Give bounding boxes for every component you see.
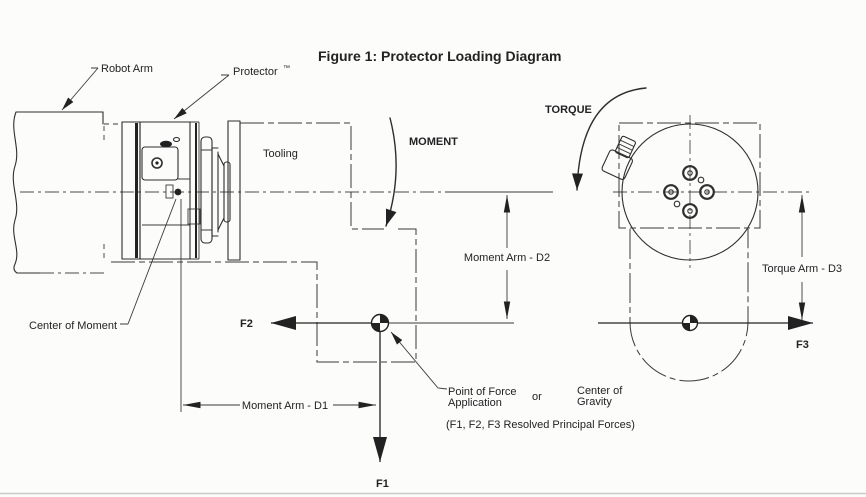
figure-title: Figure 1: Protector Loading Diagram — [318, 48, 561, 64]
center-of-moment-label: Center of Moment — [29, 320, 117, 332]
torque-arm-d3-label: Torque Arm - D3 — [762, 263, 842, 275]
resolved-forces-note: (F1, F2, F3 Resolved Principal Forces) — [446, 419, 635, 431]
protector-face-view — [601, 123, 760, 381]
tooling-phantom-obround — [630, 229, 748, 381]
leader-lines — [62, 68, 447, 389]
robot-arm-drawing — [13, 112, 122, 273]
or-label: or — [532, 391, 542, 403]
moment-arm-d2-label: Moment Arm - D2 — [464, 252, 550, 264]
sensor-cap — [160, 141, 172, 147]
protector-bracket — [201, 137, 212, 243]
robot-arm-label: Robot Arm — [101, 63, 153, 75]
f1-label: F1 — [376, 478, 389, 490]
protector-loading-diagram-page: Figure 1: Protector Loading Diagram Robo… — [0, 0, 866, 497]
cg-symbol-left — [372, 315, 389, 332]
center-of-gravity-label-line2: Gravity — [577, 396, 612, 408]
protector-trademark: ™ — [283, 65, 290, 72]
moment-arrow — [386, 118, 396, 226]
point-of-force-label-line2: Application — [448, 397, 502, 409]
torque-label: TORQUE — [545, 104, 592, 116]
cg-symbol-right — [683, 316, 698, 331]
f2-label: F2 — [240, 318, 253, 330]
tooling-label: Tooling — [263, 148, 298, 160]
f3-label: F3 — [796, 339, 809, 351]
diagram-canvas: Figure 1: Protector Loading Diagram Robo… — [0, 0, 866, 497]
tooling-drawing — [107, 121, 416, 362]
protector-drawing — [122, 122, 230, 259]
moment-arm-d1-label: Moment Arm - D1 — [242, 400, 328, 412]
force-lines — [271, 323, 813, 462]
protector-label: Protector — [233, 66, 278, 78]
moment-label: MOMENT — [409, 136, 458, 148]
center-of-moment-point — [175, 189, 182, 196]
sensor-box — [142, 147, 178, 180]
clamp-detail — [601, 134, 641, 181]
